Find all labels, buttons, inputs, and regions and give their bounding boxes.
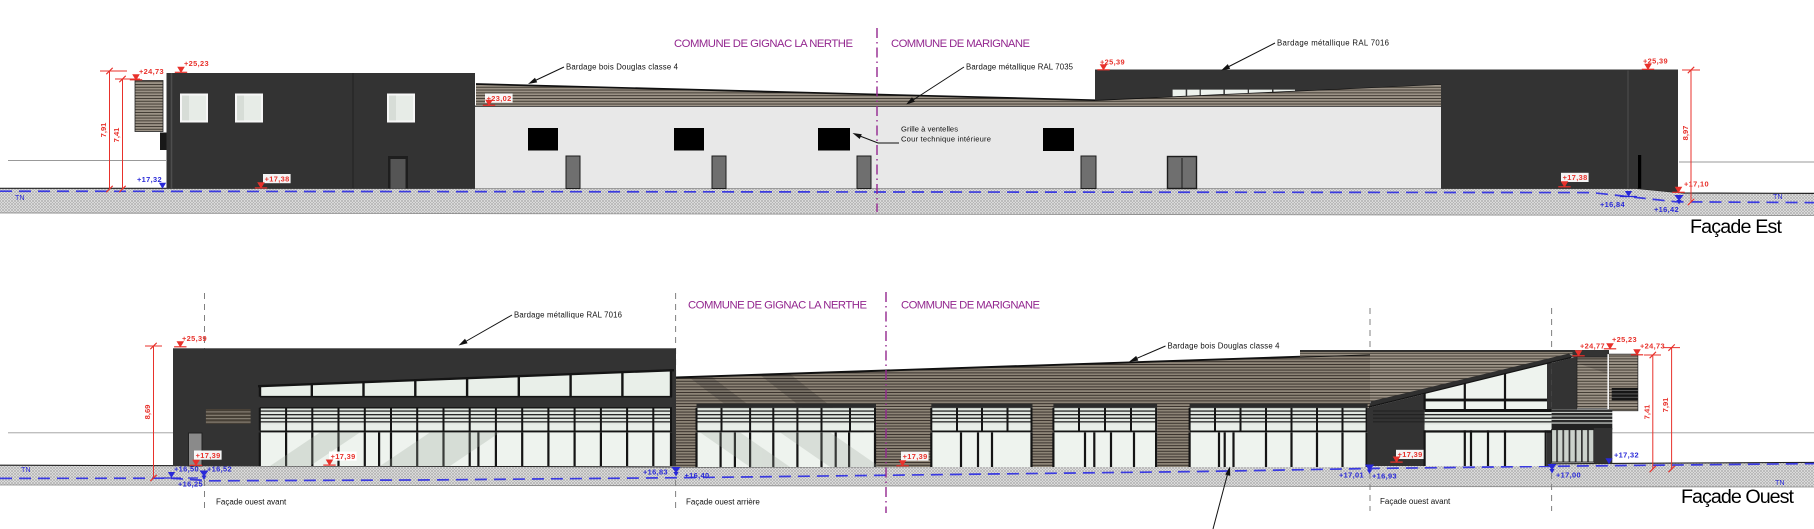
svg-text:Façade ouest avant: Façade ouest avant (1380, 497, 1451, 506)
svg-text:Bardage métallique RAL 7016: Bardage métallique RAL 7016 (514, 311, 622, 320)
svg-text:Bardage métallique RAL 7016: Bardage métallique RAL 7016 (1277, 39, 1389, 48)
svg-text:TN: TN (1773, 192, 1783, 201)
svg-text:+16,83: +16,83 (643, 468, 668, 477)
svg-text:COMMUNE DE GIGNAC LA NERTHE: COMMUNE DE GIGNAC LA NERTHE (688, 300, 867, 312)
svg-text:+25,23: +25,23 (1612, 335, 1637, 344)
svg-text:+17,32: +17,32 (137, 175, 162, 184)
svg-text:+24,73: +24,73 (139, 67, 164, 76)
svg-text:7,91: 7,91 (1661, 397, 1670, 413)
svg-text:+16,42: +16,42 (1654, 205, 1679, 214)
svg-text:+16,93: +16,93 (1372, 471, 1397, 480)
svg-text:+17,39: +17,39 (903, 452, 928, 461)
svg-text:Façade ouest arrière: Façade ouest arrière (686, 498, 760, 507)
svg-text:+24,77: +24,77 (1580, 342, 1605, 351)
svg-text:+17,38: +17,38 (265, 174, 290, 183)
svg-text:Bardage bois Douglas classe 4: Bardage bois Douglas classe 4 (1168, 342, 1281, 351)
svg-text:Bardage bois Douglas classe 4: Bardage bois Douglas classe 4 (566, 63, 679, 72)
svg-text:COMMUNE DE MARIGNANE: COMMUNE DE MARIGNANE (891, 38, 1030, 50)
svg-text:+17,39: +17,39 (331, 452, 356, 461)
svg-text:COMMUNE DE MARIGNANE: COMMUNE DE MARIGNANE (901, 300, 1040, 312)
svg-text:Bardage métallique RAL 7035: Bardage métallique RAL 7035 (966, 63, 1074, 72)
svg-text:+25,23: +25,23 (184, 59, 209, 68)
svg-text:Façade Est: Façade Est (1690, 216, 1783, 238)
svg-text:+16,40: +16,40 (685, 471, 710, 480)
svg-text:+17,00: +17,00 (1556, 471, 1581, 480)
svg-text:+17,32: +17,32 (1614, 450, 1639, 459)
svg-text:+17,38: +17,38 (1563, 173, 1588, 182)
svg-text:+17,10: +17,10 (1684, 180, 1709, 189)
svg-text:Façade ouest avant: Façade ouest avant (216, 498, 287, 507)
svg-text:Cour technique intérieure: Cour technique intérieure (901, 135, 991, 144)
svg-text:Façade Ouest: Façade Ouest (1681, 486, 1795, 508)
svg-text:+16,52: +16,52 (207, 464, 232, 473)
svg-text:+24,73: +24,73 (1640, 342, 1665, 351)
svg-text:7,41: 7,41 (112, 127, 121, 143)
svg-text:+16,50: +16,50 (174, 464, 199, 473)
svg-text:7,41: 7,41 (1643, 404, 1652, 420)
svg-text:+17,39: +17,39 (196, 451, 221, 460)
svg-text:7,91: 7,91 (99, 122, 108, 138)
svg-text:TN: TN (21, 465, 31, 474)
svg-text:8,97: 8,97 (1681, 126, 1690, 141)
svg-text:COMMUNE DE GIGNAC LA NERTHE: COMMUNE DE GIGNAC LA NERTHE (674, 38, 853, 50)
svg-text:8,69: 8,69 (143, 405, 152, 420)
svg-text:+17,01: +17,01 (1339, 470, 1364, 479)
svg-text:+16,84: +16,84 (1600, 200, 1625, 209)
svg-text:TN: TN (15, 193, 25, 202)
svg-text:+17,39: +17,39 (1398, 450, 1423, 459)
svg-text:+25,39: +25,39 (182, 334, 207, 343)
svg-text:Grille à ventelles: Grille à ventelles (901, 125, 958, 134)
svg-text:+16,25: +16,25 (178, 480, 203, 489)
